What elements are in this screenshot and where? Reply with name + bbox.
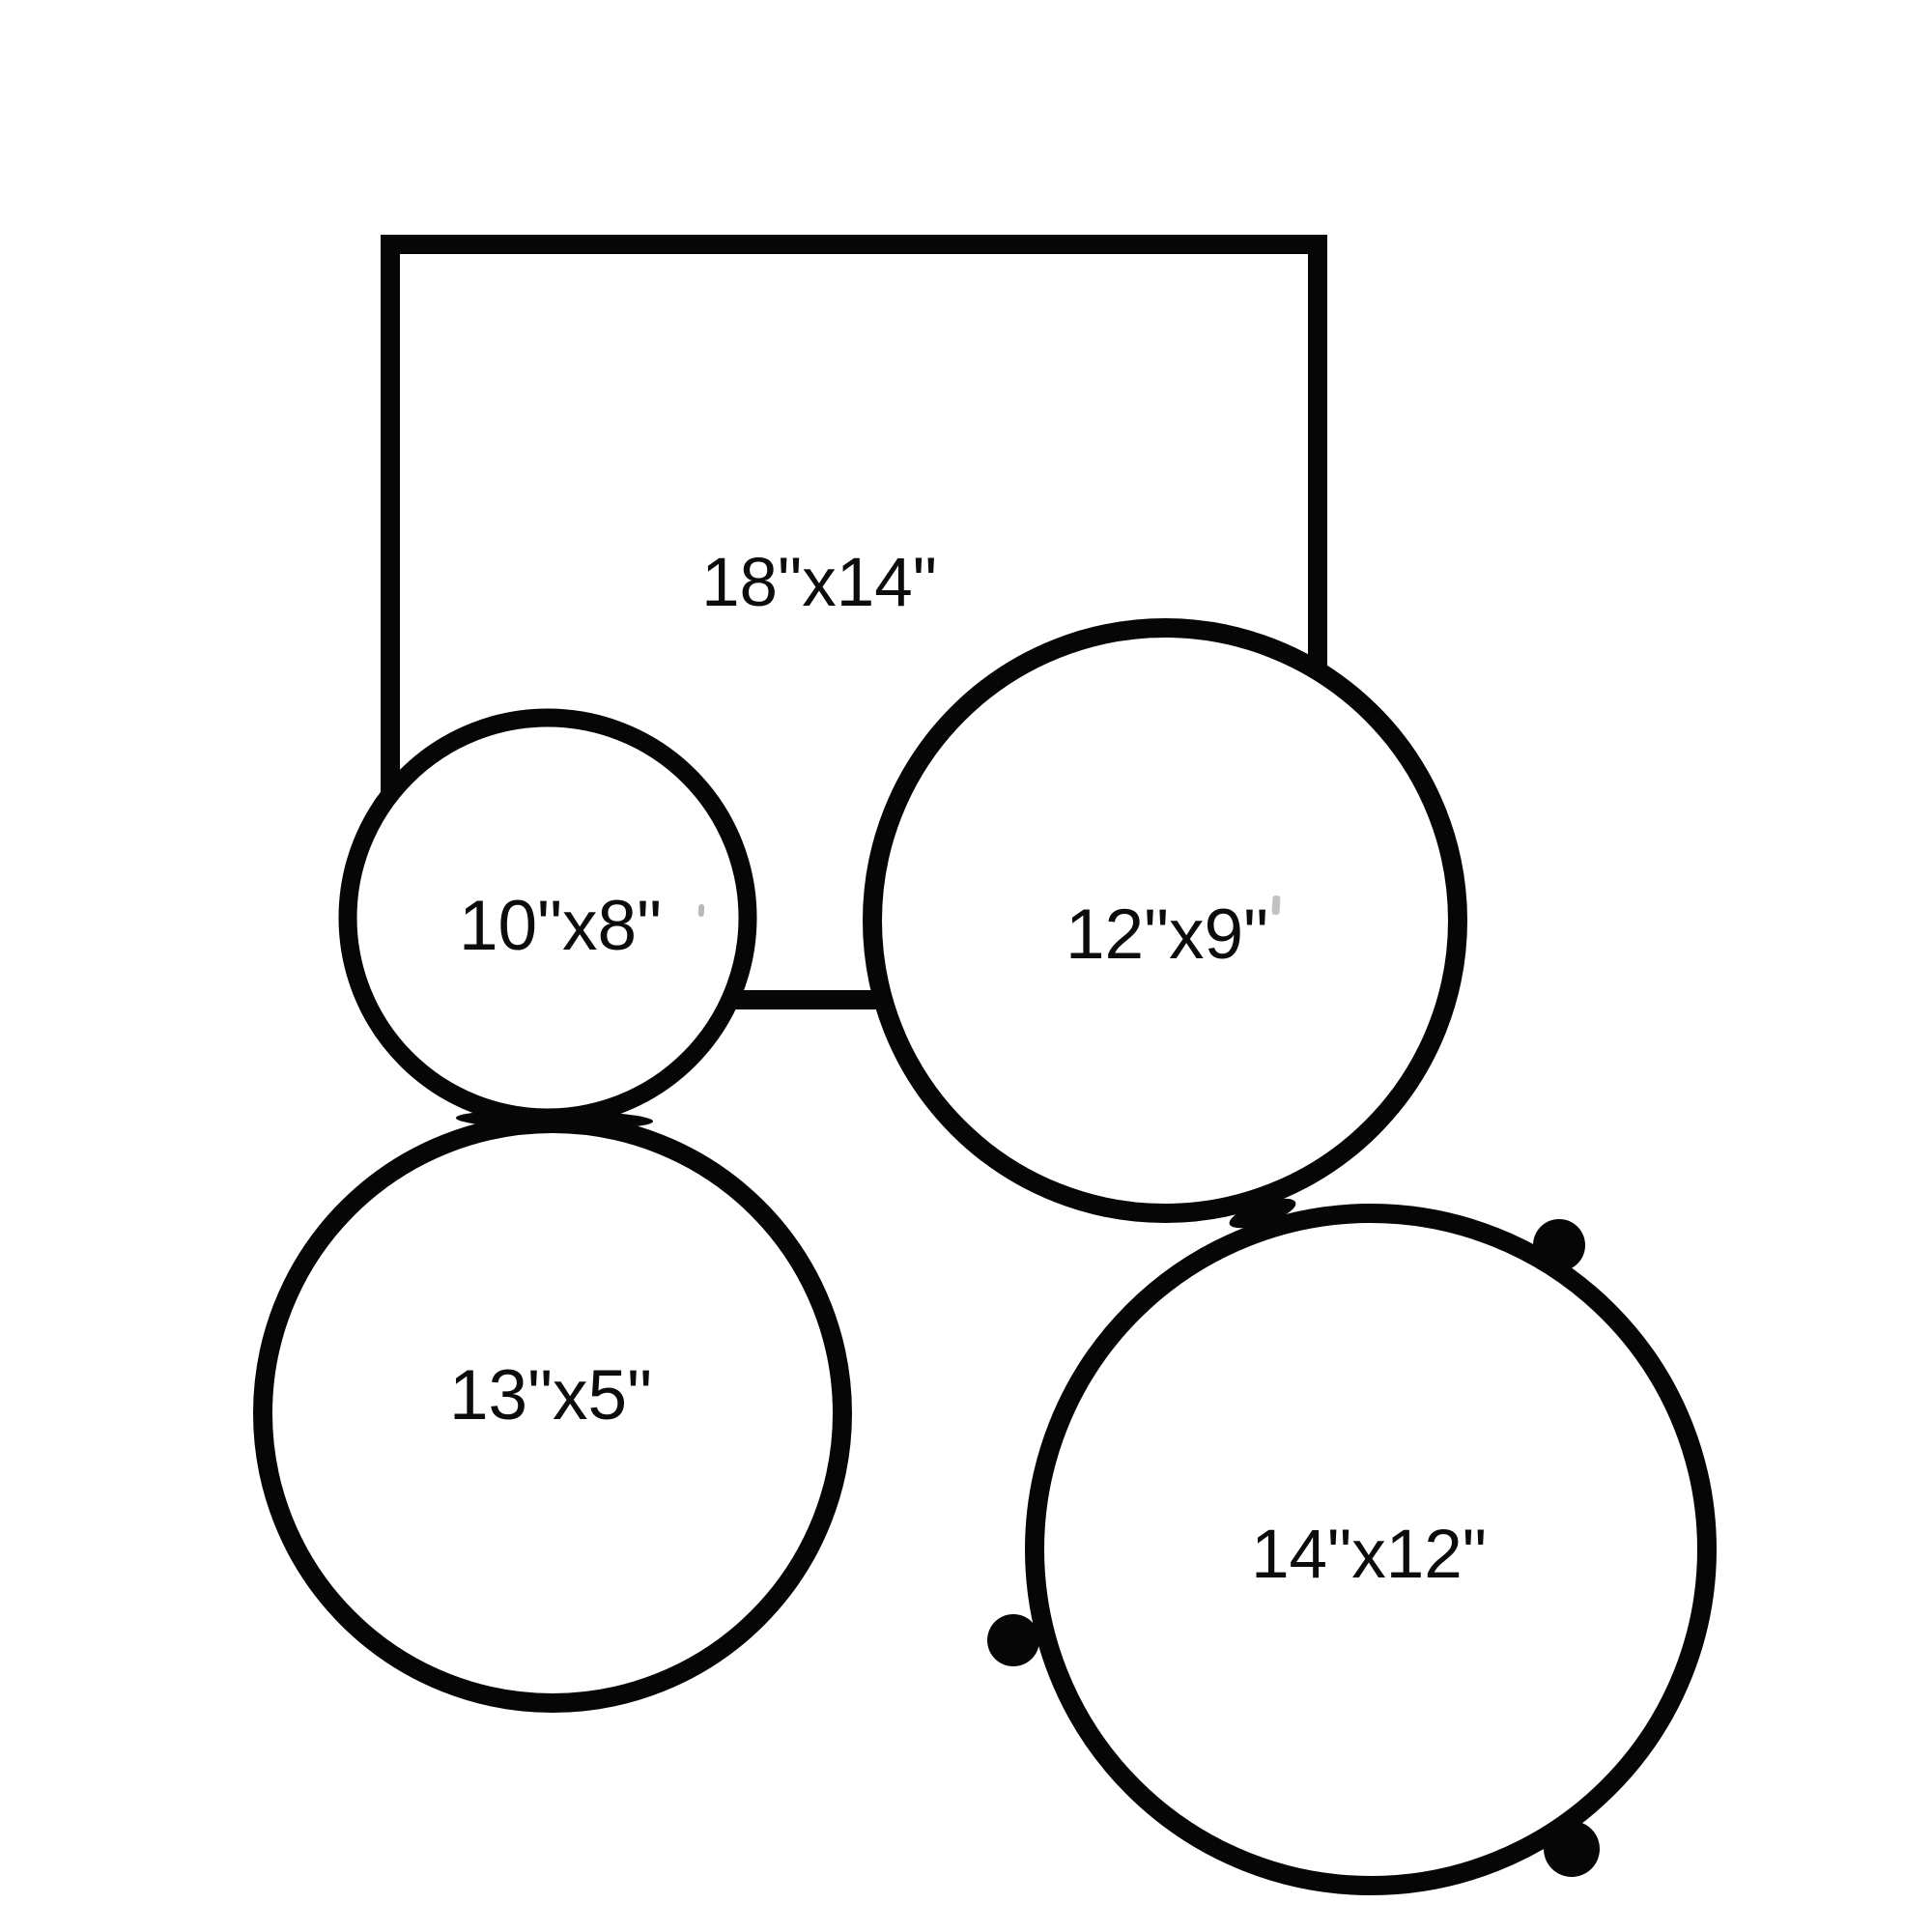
svg-text:14"x12": 14"x12" <box>1251 1517 1487 1593</box>
svg-text:18"x14": 18"x14" <box>701 545 937 621</box>
svg-text:13"x5": 13"x5" <box>449 1356 652 1435</box>
svg-text:12"x9": 12"x9" <box>1065 895 1268 974</box>
svg-text:10"x8": 10"x8" <box>459 887 662 965</box>
